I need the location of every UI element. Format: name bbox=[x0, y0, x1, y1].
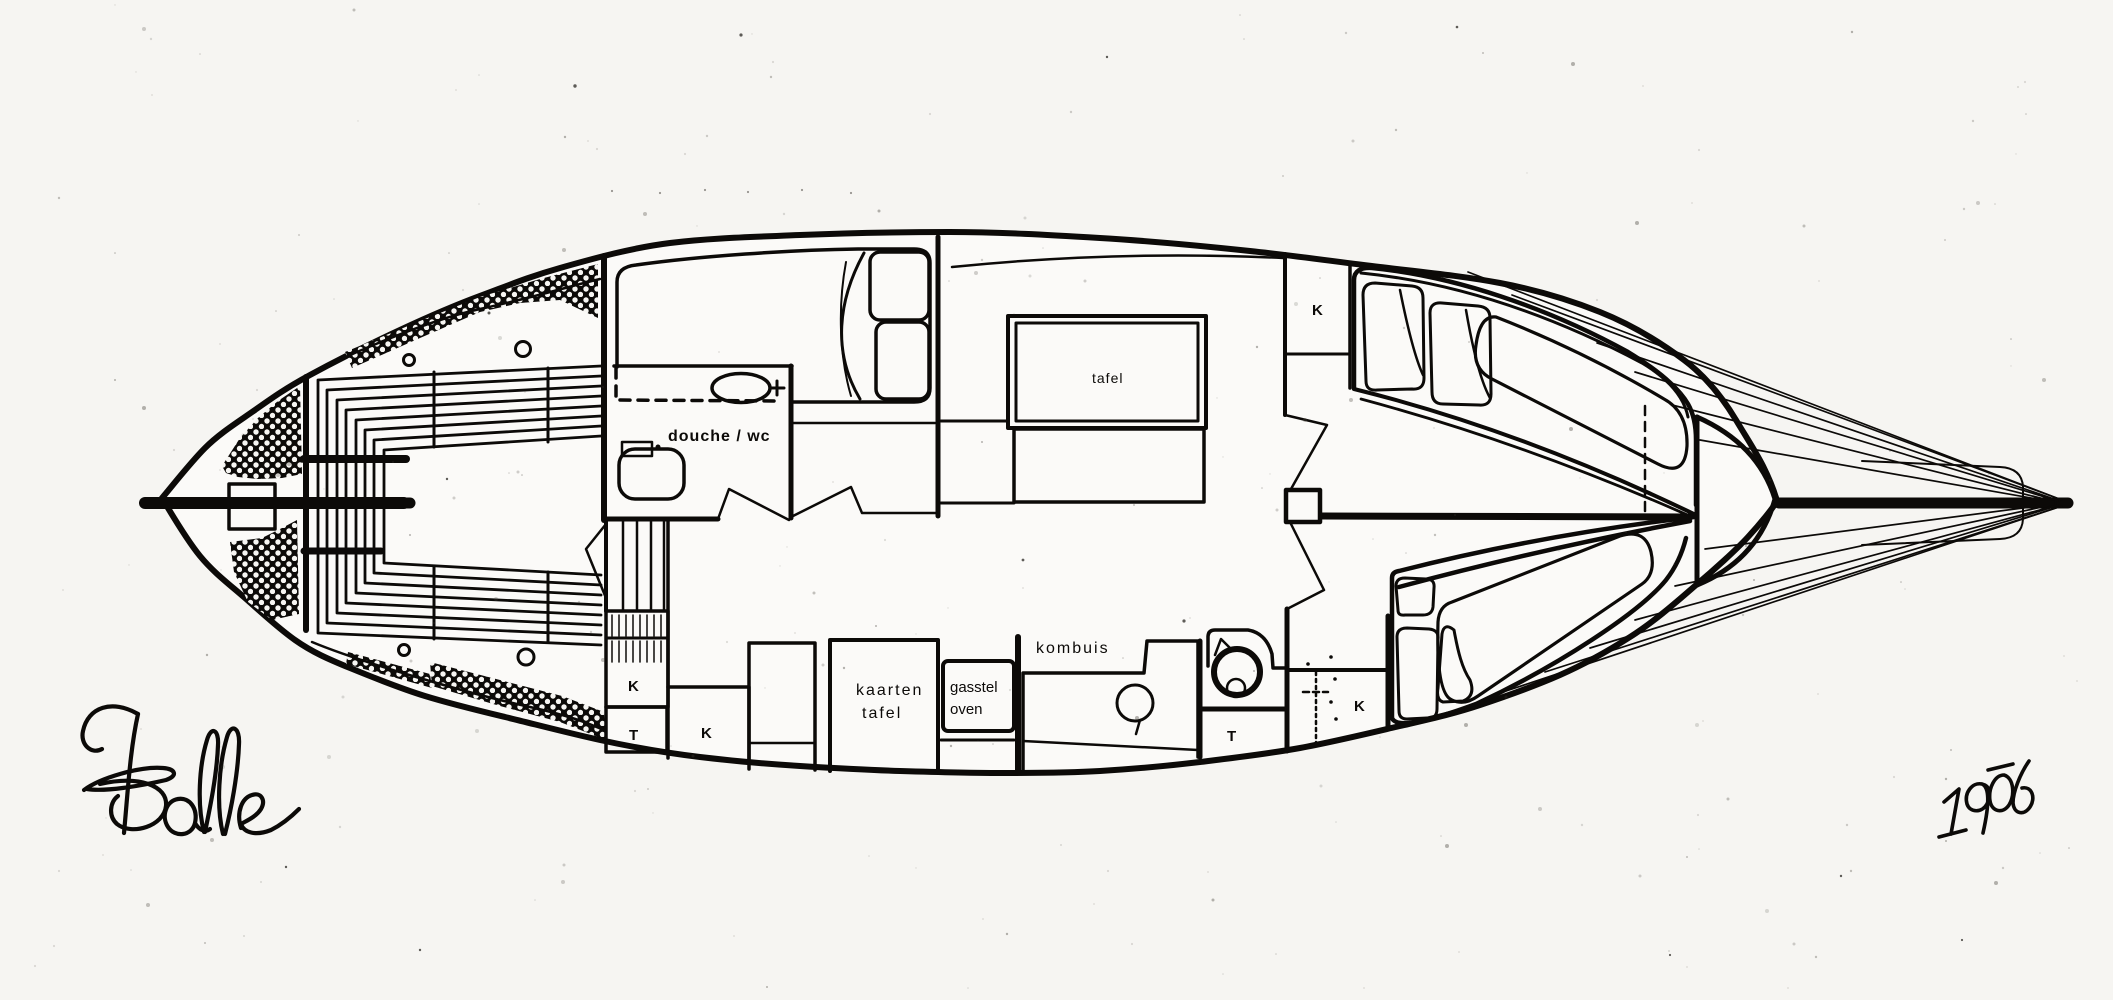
svg-text:K: K bbox=[701, 725, 712, 742]
svg-text:T: T bbox=[1227, 728, 1236, 745]
svg-text:kombuis: kombuis bbox=[1036, 640, 1110, 657]
svg-text:T: T bbox=[629, 727, 638, 744]
svg-text:tafel: tafel bbox=[1092, 370, 1123, 386]
svg-text:oven: oven bbox=[950, 701, 983, 718]
svg-text:tafel: tafel bbox=[862, 705, 902, 722]
svg-text:douche / wc: douche / wc bbox=[668, 428, 771, 445]
svg-text:gasstel: gasstel bbox=[950, 679, 998, 696]
svg-text:K: K bbox=[1354, 698, 1365, 715]
svg-text:kaarten: kaarten bbox=[856, 682, 923, 699]
svg-text:K: K bbox=[628, 678, 639, 695]
svg-text:K: K bbox=[1312, 302, 1323, 319]
